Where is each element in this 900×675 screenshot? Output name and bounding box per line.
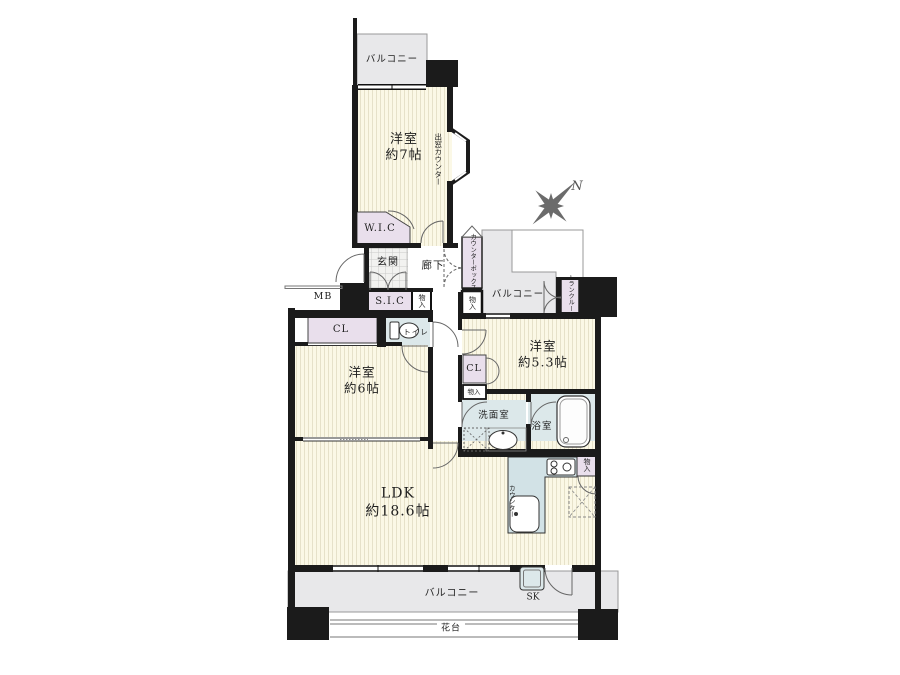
bedroom7-label: 洋室約7帖 bbox=[385, 132, 422, 165]
flower-bed-label: 花台 bbox=[437, 623, 465, 634]
balcony-mid-region bbox=[482, 230, 556, 315]
compass-icon bbox=[533, 182, 575, 224]
room-name: LDK bbox=[365, 486, 430, 504]
storage-kitchen-label: 物入 bbox=[583, 458, 590, 472]
bay-window bbox=[452, 130, 468, 183]
pillar bbox=[578, 609, 618, 640]
storage-counterbox-label: 物入 bbox=[469, 296, 476, 310]
bay-window-counter-label: 出窓カウンター bbox=[434, 133, 442, 186]
balcony-mid-label: バルコニー bbox=[492, 289, 544, 301]
balcony-top-label: バルコニー bbox=[366, 54, 418, 66]
mb-label: MB bbox=[314, 291, 333, 303]
bathroom-label: 浴室 bbox=[531, 421, 552, 433]
window bbox=[486, 313, 510, 319]
toilet-label: トイレ bbox=[403, 327, 429, 336]
window bbox=[448, 565, 510, 572]
kitchen-counter-label: カウンター bbox=[508, 485, 515, 518]
sic-label: S.I.C bbox=[375, 296, 404, 309]
corridor-region bbox=[430, 292, 458, 441]
trunk-room-label: トランクルーム bbox=[567, 274, 573, 317]
pillar bbox=[426, 60, 458, 87]
bedroom6-label: 洋室約6帖 bbox=[344, 364, 380, 395]
floor-plan: { "plan_type": "apartment-floor-plan", "… bbox=[0, 0, 900, 675]
counter-box-label: カウンターボックス bbox=[469, 234, 475, 291]
wic-label: W.I.C bbox=[364, 223, 396, 236]
ldk-label: LDK約18.6帖 bbox=[365, 486, 430, 521]
bedroom53-label: 洋室約5.3帖 bbox=[518, 338, 568, 369]
bathtub-icon bbox=[557, 396, 590, 447]
balcony-bottom-label: バルコニー bbox=[425, 588, 480, 601]
genkan-label: 玄関 bbox=[377, 257, 399, 270]
room-size: 約6帖 bbox=[344, 380, 380, 396]
sliding-door bbox=[303, 438, 420, 441]
closet53-label: CL bbox=[466, 363, 482, 375]
building-outline bbox=[512, 230, 583, 277]
stove-icon bbox=[547, 459, 575, 475]
sk-label: SK bbox=[527, 592, 540, 603]
window bbox=[358, 84, 426, 90]
room-name: 洋室 bbox=[385, 132, 422, 148]
floor-plan-graphic bbox=[0, 0, 900, 675]
pillar bbox=[287, 607, 329, 640]
entrance-ledge bbox=[285, 286, 342, 289]
door-entrance bbox=[336, 254, 364, 282]
room-name: 洋室 bbox=[344, 364, 380, 380]
compass-n-label: N bbox=[571, 179, 582, 195]
storage-bedroom53-label: 物入 bbox=[468, 388, 481, 396]
closet-doors bbox=[308, 343, 377, 346]
room-size: 約7帖 bbox=[385, 148, 422, 164]
washroom-label: 洗面室 bbox=[478, 410, 510, 422]
window bbox=[333, 565, 423, 572]
storage-hall-label: 物入 bbox=[418, 294, 425, 308]
room-name: 洋室 bbox=[518, 338, 568, 354]
room-size: 約18.6帖 bbox=[365, 503, 430, 521]
closet6-label: CL bbox=[333, 324, 349, 337]
hallway-label: 廊下 bbox=[422, 259, 445, 272]
slop-sink-icon bbox=[520, 567, 544, 590]
room-size: 約5.3帖 bbox=[518, 354, 568, 370]
